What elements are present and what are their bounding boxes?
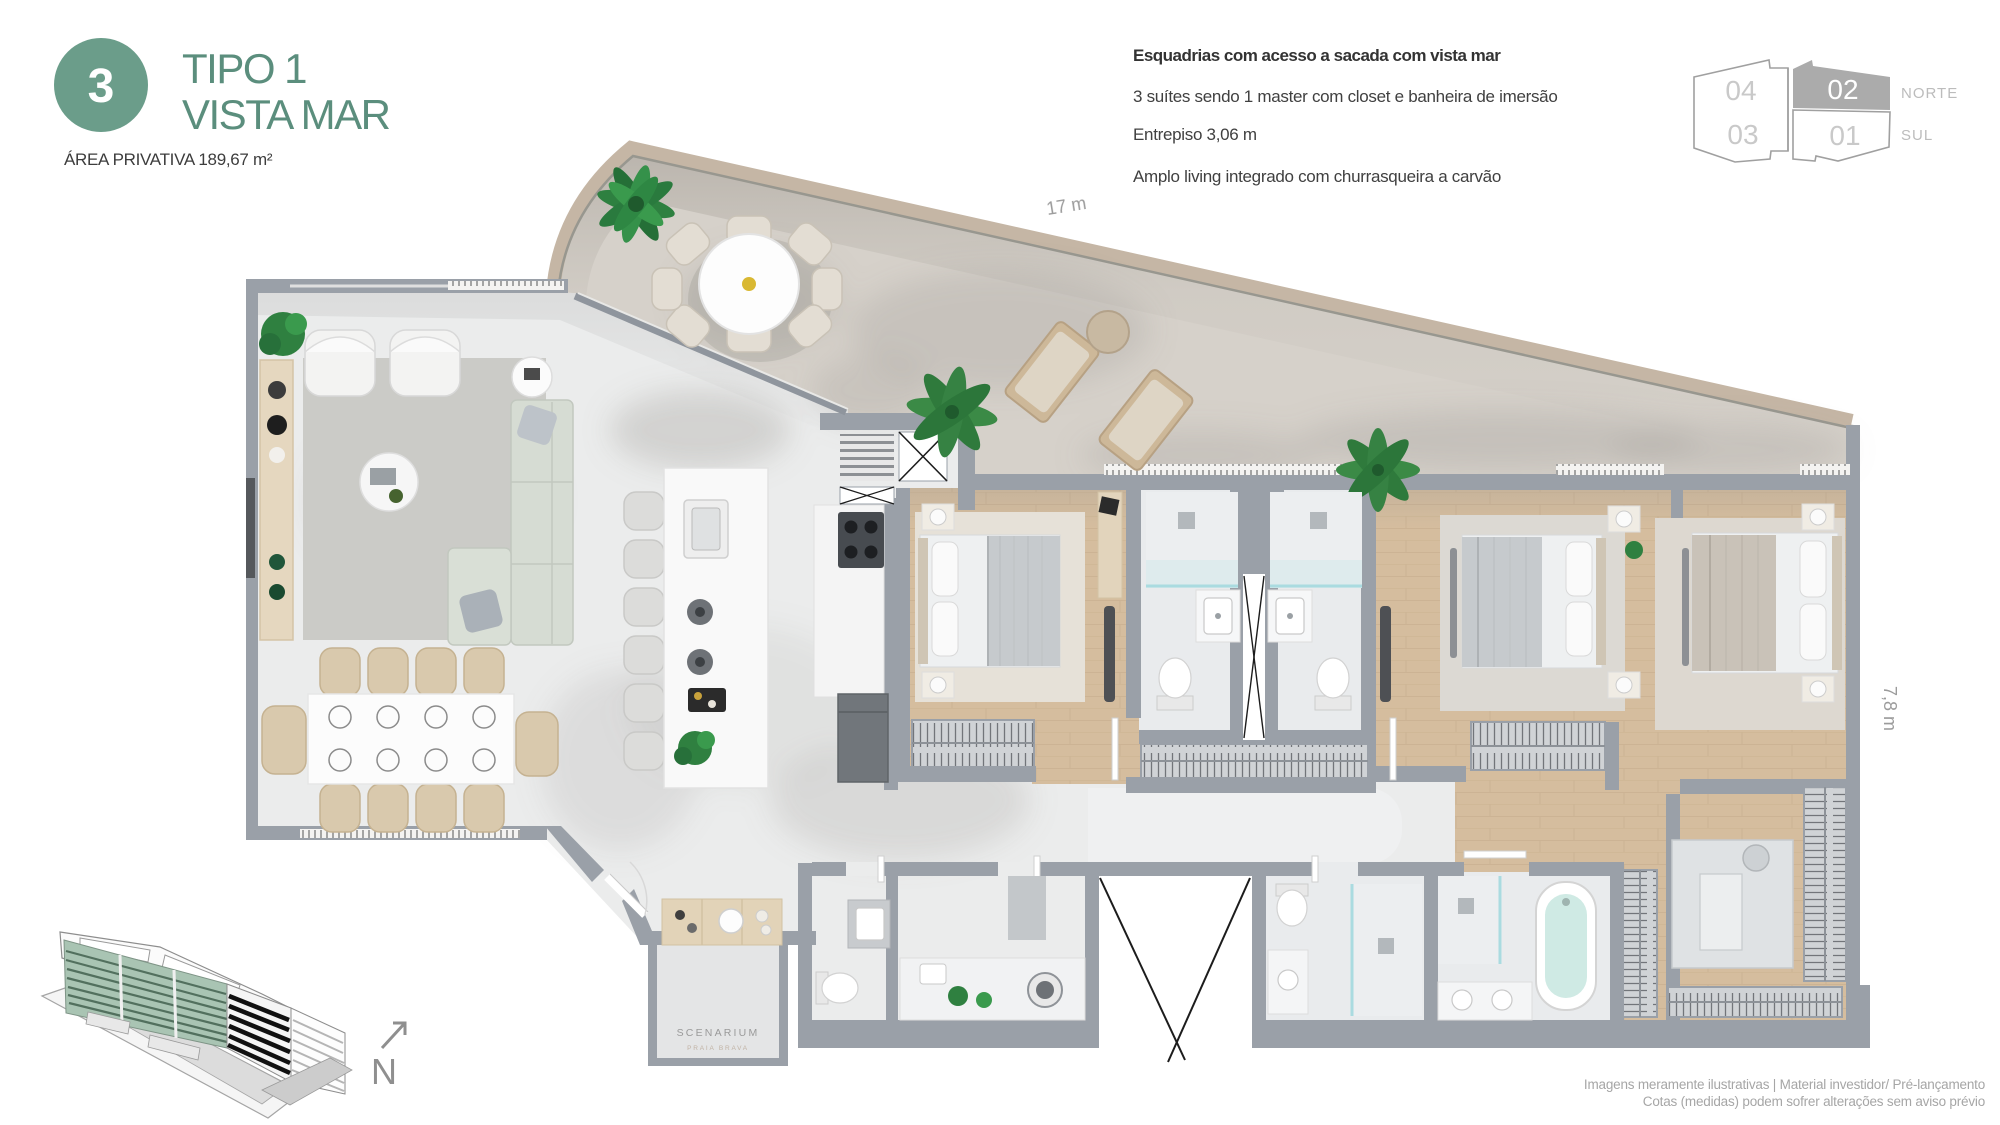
svg-text:02: 02 (1827, 74, 1858, 105)
svg-text:N: N (371, 1051, 397, 1092)
svg-text:7,8 m: 7,8 m (1880, 686, 1900, 731)
svg-text:Imagens meramente ilustrativas: Imagens meramente ilustrativas | Materia… (1584, 1077, 1985, 1092)
svg-text:Esquadrias com acesso a sacada: Esquadrias com acesso a sacada com vista… (1133, 46, 1501, 65)
svg-text:NORTE: NORTE (1901, 85, 1958, 102)
svg-text:VISTA MAR: VISTA MAR (182, 91, 390, 138)
svg-text:3 suítes sendo 1 master com cl: 3 suítes sendo 1 master com closet e ban… (1133, 87, 1558, 106)
svg-text:3: 3 (88, 60, 115, 113)
svg-text:TIPO 1: TIPO 1 (182, 45, 306, 92)
svg-text:03: 03 (1727, 119, 1758, 150)
svg-text:04: 04 (1725, 75, 1756, 106)
svg-text:01: 01 (1829, 120, 1860, 151)
svg-text:Cotas (medidas) podem sofrer a: Cotas (medidas) podem sofrer alterações … (1643, 1094, 1985, 1109)
svg-text:SCENARIUM: SCENARIUM (677, 1027, 760, 1039)
svg-text:PRAIA BRAVA: PRAIA BRAVA (687, 1045, 749, 1052)
svg-text:Amplo living integrado com chu: Amplo living integrado com churrasqueira… (1133, 167, 1501, 186)
svg-text:Entrepiso 3,06 m: Entrepiso 3,06 m (1133, 125, 1257, 144)
svg-text:17 m: 17 m (1045, 193, 1088, 219)
svg-text:ÁREA PRIVATIVA 189,67 m²: ÁREA PRIVATIVA 189,67 m² (64, 150, 273, 169)
svg-text:SUL: SUL (1901, 127, 1933, 144)
